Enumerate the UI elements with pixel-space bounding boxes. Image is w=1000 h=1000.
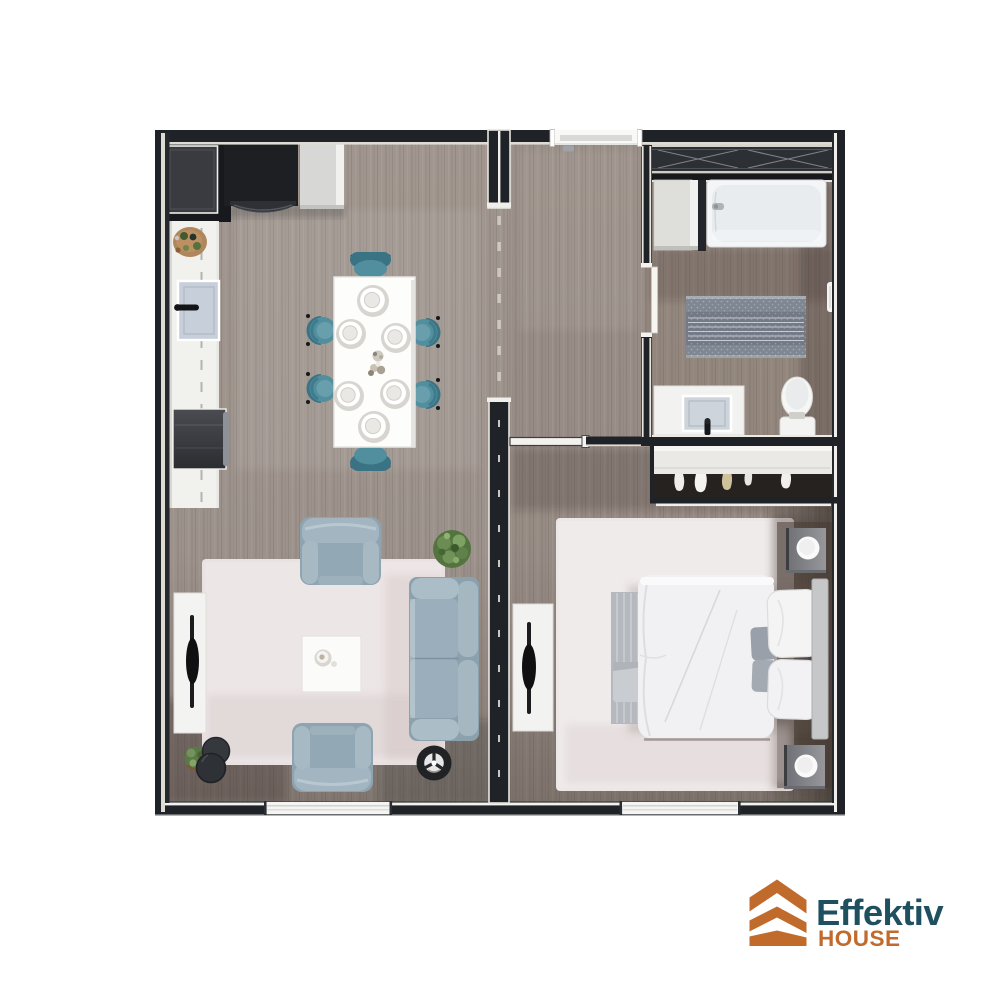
svg-text:HOUSE: HOUSE <box>818 926 901 951</box>
